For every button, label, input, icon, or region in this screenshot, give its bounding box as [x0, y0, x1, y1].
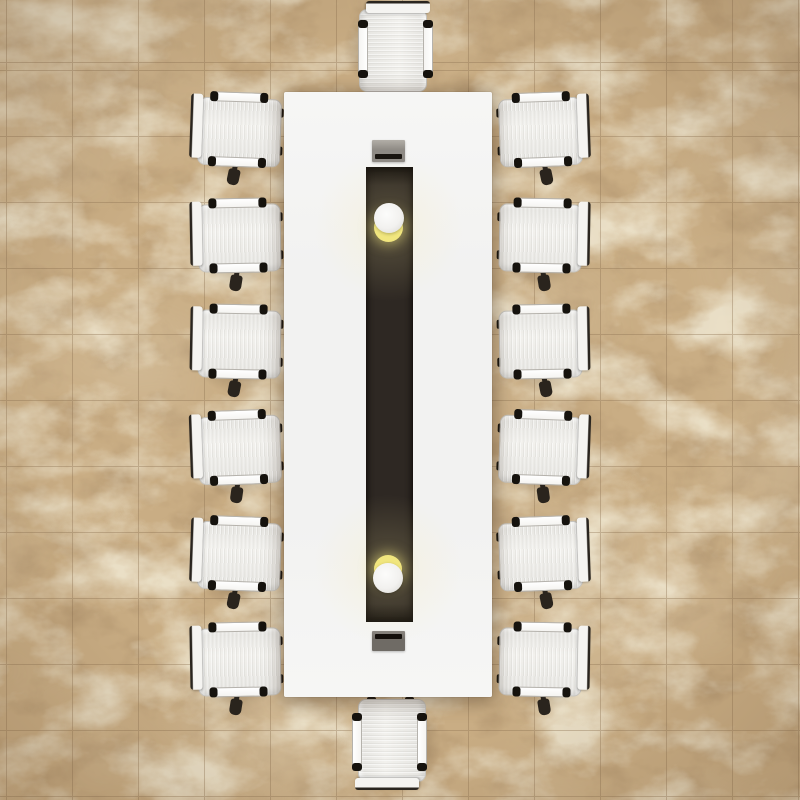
cable-tray-bottom [372, 631, 405, 651]
table-accessories-layer [0, 0, 800, 800]
cable-tray-slot [375, 634, 402, 639]
cable-tray-top [372, 140, 405, 162]
pendant-light-bulb-top [374, 203, 404, 233]
pendant-light-bulb-bottom [373, 563, 403, 593]
cable-tray-slot [375, 154, 402, 159]
conference-room-scene [0, 0, 800, 800]
